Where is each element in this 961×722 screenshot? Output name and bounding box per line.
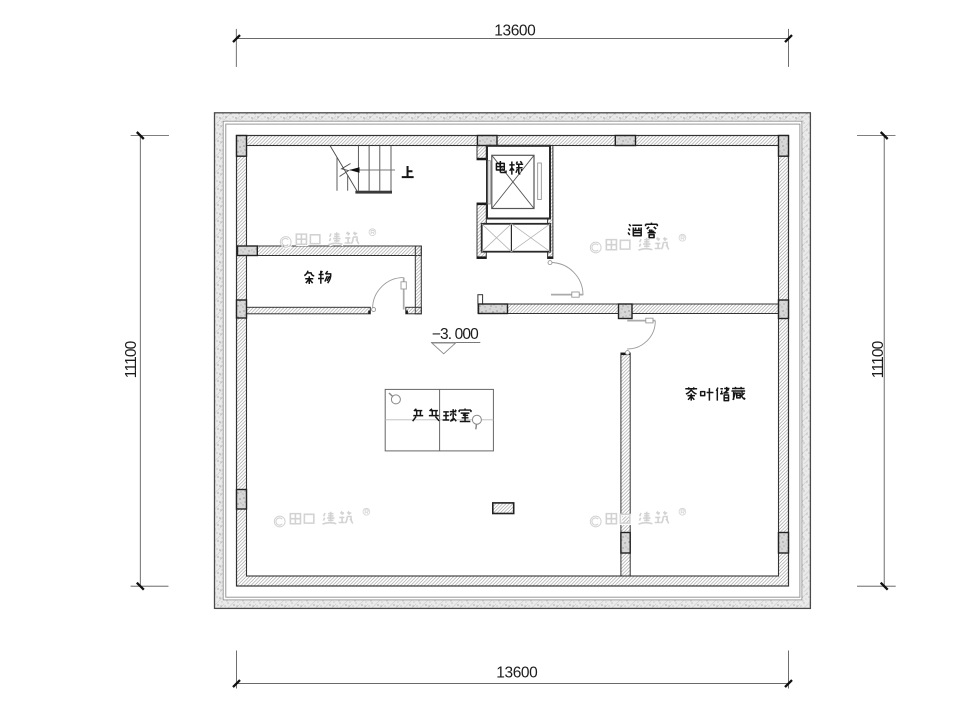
svg-text:−3. 000: −3. 000 [432,326,479,343]
svg-text:11100: 11100 [870,340,887,378]
svg-text:11100: 11100 [123,340,140,378]
svg-text:13600: 13600 [496,665,538,682]
svg-text:13600: 13600 [494,22,536,39]
